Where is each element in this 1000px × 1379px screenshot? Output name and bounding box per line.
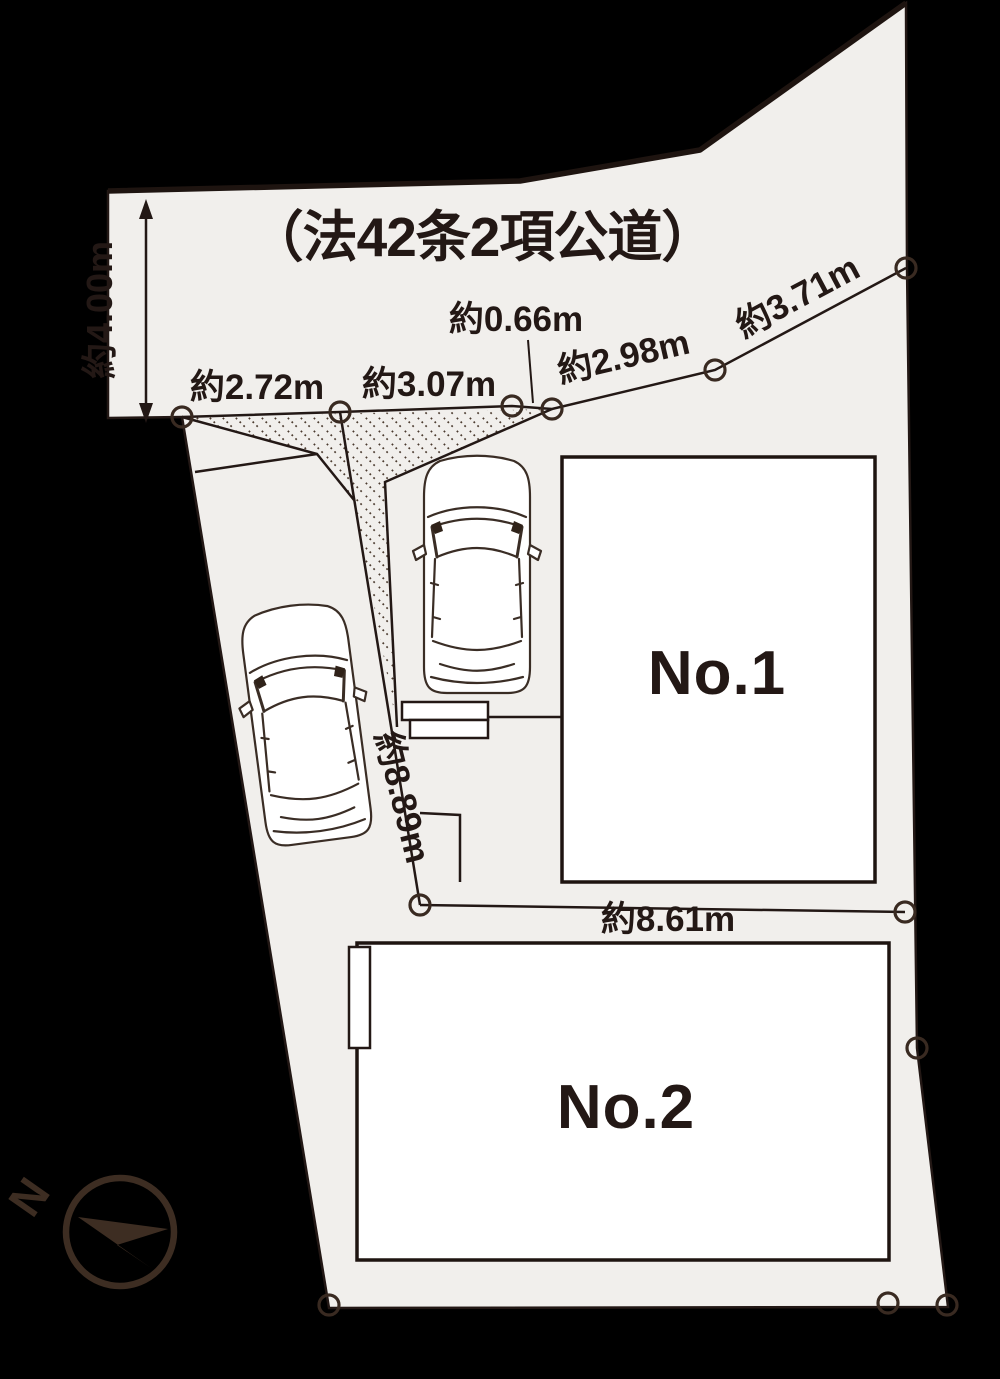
building-no2-label: No.2 bbox=[557, 1073, 695, 1142]
dim-861: 約8.61m bbox=[601, 900, 735, 939]
dim-066: 約0.66m bbox=[449, 300, 583, 339]
dim-road-width: 約4.00m bbox=[79, 241, 120, 379]
entrance-porch-step-1 bbox=[402, 702, 488, 720]
building-no1-label: No.1 bbox=[648, 639, 786, 708]
dim-272: 約2.72m bbox=[190, 368, 324, 407]
entrance-porch-step-2 bbox=[410, 720, 488, 738]
car-top-view-1 bbox=[413, 456, 541, 693]
dim-307: 約3.07m bbox=[362, 365, 496, 404]
road-label: （法42条2項公道） bbox=[249, 206, 716, 268]
site-plan-page: （法42条2項公道） 約4.00m 約2.72m 約3.07m 約0.66m 約… bbox=[0, 0, 1000, 1379]
building-no2-entrance bbox=[349, 947, 370, 1048]
site-plan-svg: （法42条2項公道） 約4.00m 約2.72m 約3.07m 約0.66m 約… bbox=[0, 0, 1000, 1379]
